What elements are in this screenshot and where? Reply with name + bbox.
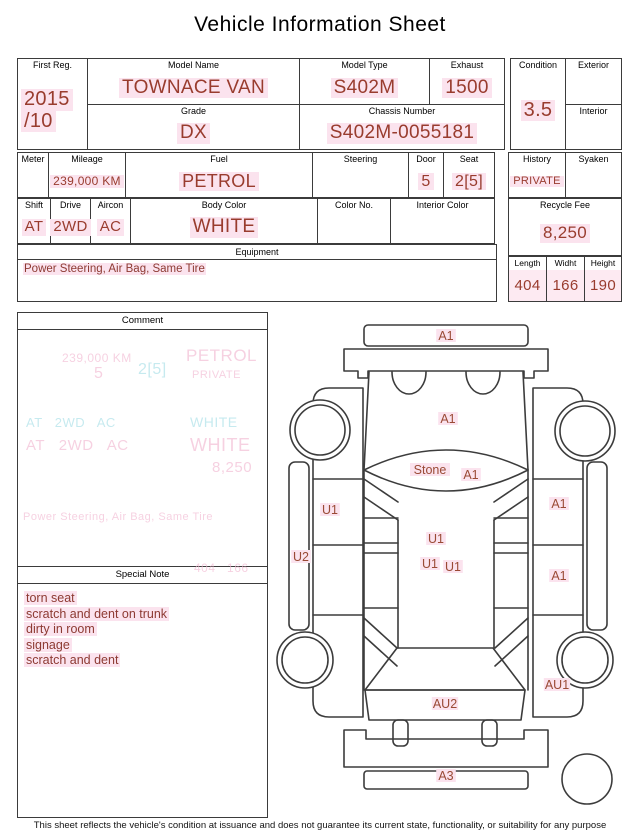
- interior-value: [566, 118, 621, 149]
- mileage-value: 239,000 KM: [49, 166, 125, 197]
- specs-row-2: Shift AT Drive 2WD Aircon AC Body Color …: [17, 198, 495, 244]
- mileage-label: Mileage: [49, 153, 125, 166]
- shift-value: AT: [18, 212, 50, 243]
- meter-label: Meter: [18, 153, 48, 166]
- damage-label: A1: [440, 412, 455, 426]
- drive-cell: Drive 2WD: [51, 199, 91, 243]
- body-color-cell: Body Color WHITE: [131, 199, 318, 243]
- condition-label: Condition: [511, 59, 565, 72]
- damage-label: AU1: [545, 678, 569, 692]
- wheels: [277, 400, 615, 804]
- history-box: History PRIVATE Syaken: [508, 152, 622, 198]
- first-reg-cell: First Reg. 2015 /10: [18, 59, 88, 149]
- damage-label: U1: [445, 560, 461, 574]
- damage-label: Stone: [414, 463, 447, 477]
- syaken-cell: Syaken: [566, 153, 621, 197]
- recycle-fee-box: Recycle Fee 8,250: [508, 198, 622, 256]
- interior-color-cell: Interior Color: [391, 199, 494, 243]
- door-label: Door: [409, 153, 443, 166]
- syaken-label: Syaken: [566, 153, 621, 166]
- length-label: Length: [509, 257, 546, 270]
- grade-cell: Grade DX: [88, 105, 300, 149]
- grade-label: Grade: [88, 105, 299, 118]
- special-note-header: Special Note: [18, 566, 267, 584]
- seat-value: 2[5]: [444, 166, 494, 197]
- comment-header: Comment: [18, 313, 267, 330]
- equipment-value: Power Steering, Air Bag, Same Tire: [18, 260, 496, 278]
- shift-cell: Shift AT: [18, 199, 51, 243]
- vehicle-information-sheet: Vehicle Information Sheet First Reg. 201…: [0, 0, 640, 835]
- interior-color-value: [391, 212, 494, 243]
- fuel-cell: Fuel PETROL: [126, 153, 313, 197]
- color-no-label: Color No.: [318, 199, 390, 212]
- chassis-number-value: S402M-0055181: [300, 118, 504, 149]
- aircon-value: AC: [91, 212, 130, 243]
- history-label: History: [509, 153, 565, 166]
- spare-tire: [562, 754, 612, 804]
- recycle-fee-label: Recycle Fee: [509, 199, 621, 212]
- exterior-label: Exterior: [566, 59, 621, 72]
- model-type-label: Model Type: [300, 59, 429, 72]
- meter-value: [18, 166, 48, 197]
- interior-cell: Interior: [566, 105, 621, 149]
- drive-label: Drive: [51, 199, 90, 212]
- seat-label: Seat: [444, 153, 494, 166]
- height-cell: Height 190: [585, 257, 621, 301]
- exterior-cell: Exterior: [566, 59, 621, 105]
- door-cell: Door 5: [409, 153, 444, 197]
- special-note-item: torn seat: [24, 591, 261, 607]
- recycle-fee-value: 8,250: [509, 212, 621, 255]
- damage-label: A3: [438, 769, 453, 783]
- damage-label: U1: [322, 503, 338, 517]
- damage-label: A1: [551, 497, 566, 511]
- body-color-value: WHITE: [131, 212, 317, 243]
- special-note-item: dirty in room: [24, 622, 261, 638]
- fuel-label: Fuel: [126, 153, 312, 166]
- damage-label: A1: [551, 569, 566, 583]
- condition-cell: Condition 3.5: [511, 59, 566, 149]
- comment-body: [18, 330, 267, 566]
- damage-label: U2: [293, 550, 309, 564]
- color-no-cell: Color No.: [318, 199, 391, 243]
- meter-cell: Meter: [18, 153, 49, 197]
- damage-label: A1: [463, 468, 478, 482]
- special-note-item: scratch and dent on trunk: [24, 607, 261, 623]
- chassis-number-cell: Chassis Number S402M-0055181: [300, 105, 504, 149]
- page-title: Vehicle Information Sheet: [0, 13, 640, 37]
- exterior-value: [566, 72, 621, 104]
- first-reg-value: 2015 /10: [18, 72, 87, 149]
- exhaust-value: 1500: [430, 72, 504, 104]
- dimensions-table: Length 404 Widht 166 Height 190: [508, 256, 622, 302]
- condition-value: 3.5: [511, 72, 565, 149]
- equipment-label: Equipment: [18, 245, 496, 260]
- specs-row-1: Meter Mileage 239,000 KM Fuel PETROL Ste…: [17, 152, 495, 198]
- car-body-outline: [344, 325, 548, 789]
- comment-column: Comment Special Note torn seatscratch an…: [17, 312, 268, 818]
- chassis-number-label: Chassis Number: [300, 105, 504, 118]
- interior-label: Interior: [566, 105, 621, 118]
- drive-value: 2WD: [51, 212, 90, 243]
- model-name-cell: Model Name TOWNACE VAN: [88, 59, 300, 105]
- first-reg-label: First Reg.: [18, 59, 87, 72]
- interior-color-label: Interior Color: [391, 199, 494, 212]
- damage-label: AU2: [433, 697, 457, 711]
- history-cell: History PRIVATE: [509, 153, 566, 197]
- seat-cell: Seat 2[5]: [444, 153, 494, 197]
- equipment-box: Equipment Power Steering, Air Bag, Same …: [17, 244, 497, 302]
- damage-label: U1: [428, 532, 444, 546]
- vehicle-identity-table: First Reg. 2015 /10 Model Name TOWNACE V…: [17, 58, 505, 150]
- special-note-item: scratch and dent: [24, 653, 261, 669]
- model-type-cell: Model Type S402M: [300, 59, 430, 105]
- car-damage-diagram: A1A1StoneA1U1A1U2U1U1U1A1AU1AU2A3: [272, 312, 632, 812]
- recycle-fee-cell: Recycle Fee 8,250: [509, 199, 621, 255]
- width-value: 166: [547, 270, 584, 301]
- mileage-cell: Mileage 239,000 KM: [49, 153, 126, 197]
- exhaust-label: Exhaust: [430, 59, 504, 72]
- grade-value: DX: [88, 118, 299, 149]
- shift-label: Shift: [18, 199, 50, 212]
- syaken-value: [566, 166, 621, 197]
- height-label: Height: [585, 257, 621, 270]
- color-no-value: [318, 212, 390, 243]
- fuel-value: PETROL: [126, 166, 312, 197]
- length-cell: Length 404: [509, 257, 547, 301]
- door-value: 5: [409, 166, 443, 197]
- aircon-cell: Aircon AC: [91, 199, 131, 243]
- height-value: 190: [585, 270, 621, 301]
- length-value: 404: [509, 270, 546, 301]
- steering-value: [313, 166, 408, 197]
- special-note-list: torn seatscratch and dent on trunkdirty …: [18, 584, 267, 676]
- steering-label: Steering: [313, 153, 408, 166]
- damage-label: U1: [422, 557, 438, 571]
- exhaust-cell: Exhaust 1500: [430, 59, 504, 105]
- condition-box: Condition 3.5 Exterior Interior: [510, 58, 622, 150]
- steering-cell: Steering: [313, 153, 409, 197]
- width-label: Widht: [547, 257, 584, 270]
- history-value: PRIVATE: [509, 166, 565, 197]
- disclaimer-text: This sheet reflects the vehicle's condit…: [0, 820, 640, 831]
- body-color-label: Body Color: [131, 199, 317, 212]
- model-name-value: TOWNACE VAN: [88, 72, 299, 104]
- aircon-label: Aircon: [91, 199, 130, 212]
- model-name-label: Model Name: [88, 59, 299, 72]
- width-cell: Widht 166: [547, 257, 585, 301]
- special-note-item: signage: [24, 638, 261, 654]
- model-type-value: S402M: [300, 72, 429, 104]
- damage-label: A1: [438, 329, 453, 343]
